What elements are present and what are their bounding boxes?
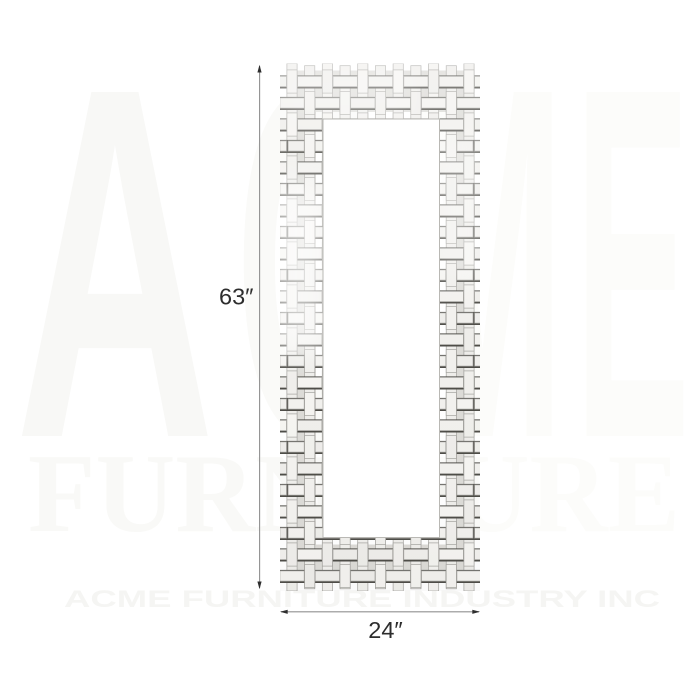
svg-text:63″: 63″: [219, 284, 253, 310]
svg-text:24″: 24″: [368, 617, 402, 643]
